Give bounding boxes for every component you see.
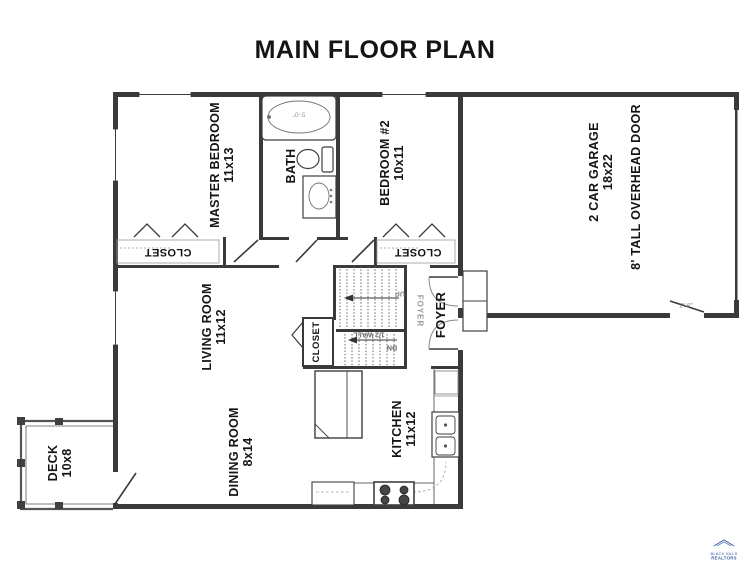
- floor-plan-page: MAIN FLOOR PLAN: [0, 0, 750, 562]
- deck-label: DECK 10x8: [42, 449, 79, 477]
- stairs-up-note: UP: [395, 290, 405, 297]
- dining-room-label: DINING ROOM 8x14: [196, 438, 285, 466]
- half-wall-note: 1/2 WALL: [353, 331, 385, 338]
- master-closet-label: CLOSET: [144, 245, 191, 259]
- garage-service-door-dimension: 2'-8": [680, 303, 693, 310]
- logo-line-2: REALTORS: [709, 556, 739, 560]
- stair-closet-label: CLOSET: [297, 335, 338, 349]
- refrigerator-icon: [315, 371, 362, 438]
- dishwasher-icon: [435, 371, 458, 394]
- staircase: [340, 266, 399, 366]
- tub-dimension: 5'-0": [293, 111, 306, 118]
- garage-door-note-label: 8' TALL OVERHEAD DOOR: [553, 180, 719, 194]
- garage-steps: [463, 271, 487, 331]
- roof-icon: [700, 538, 748, 547]
- living-room-label: LIVING ROOM 11x12: [170, 313, 257, 341]
- bedroom-2-label: BEDROOM #2 10x11: [349, 149, 435, 177]
- bedroom-2-closet-label: CLOSET: [394, 245, 441, 259]
- toilet-icon: [322, 147, 333, 172]
- bath-label: BATH: [274, 159, 309, 173]
- kitchen-label: KITCHEN 11x12: [375, 415, 433, 443]
- foyer-label: FOYER: [418, 308, 464, 322]
- master-bedroom-label: MASTER BEDROOM 11x13: [159, 151, 285, 179]
- floor-plan-drawing: [0, 0, 750, 562]
- stairs-down-note: DN: [387, 344, 397, 351]
- base-cabinet-icon: [312, 482, 354, 505]
- brokerage-logo: BLACK HILLS REALTORS: [700, 534, 748, 562]
